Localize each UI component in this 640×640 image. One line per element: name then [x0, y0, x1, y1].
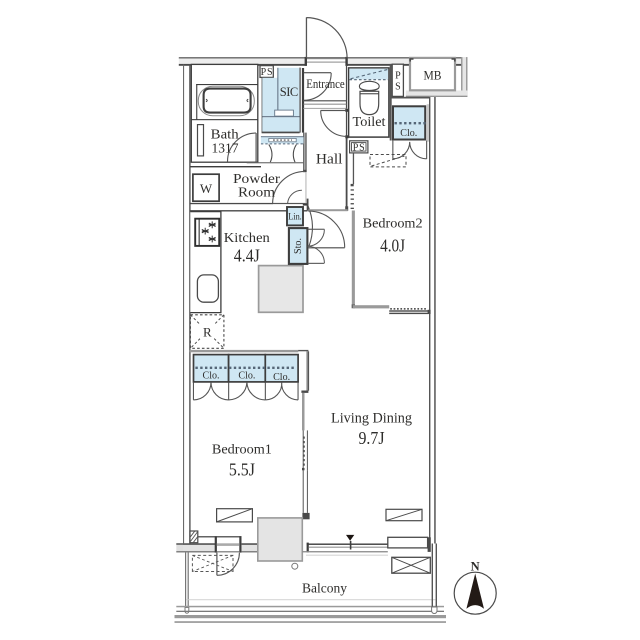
svg-text:4.4J: 4.4J: [234, 245, 260, 265]
svg-text:PS: PS: [353, 143, 365, 154]
svg-text:PS: PS: [261, 67, 273, 78]
svg-text:Toilet: Toilet: [353, 115, 386, 130]
svg-text:Kitchen: Kitchen: [224, 230, 270, 245]
svg-text:Bath: Bath: [211, 127, 239, 142]
svg-text:5.5J: 5.5J: [229, 459, 255, 479]
svg-text:Clo.: Clo.: [238, 370, 255, 381]
svg-text:Lin.: Lin.: [288, 213, 302, 223]
svg-text:9.7J: 9.7J: [359, 428, 385, 448]
svg-text:Room: Room: [238, 185, 275, 200]
svg-text:Bedroom1: Bedroom1: [212, 442, 272, 457]
svg-text:1317: 1317: [212, 142, 239, 157]
svg-text:Sto.: Sto.: [293, 238, 304, 254]
svg-text:Bedroom2: Bedroom2: [363, 216, 423, 231]
svg-text:Balcony: Balcony: [302, 581, 347, 596]
svg-text:Clo.: Clo.: [203, 370, 220, 381]
svg-text:Clo.: Clo.: [273, 372, 290, 383]
svg-text:MB: MB: [424, 69, 442, 83]
svg-text:Entrance: Entrance: [306, 76, 345, 91]
svg-text:N: N: [471, 560, 480, 574]
svg-text:P: P: [395, 71, 401, 82]
svg-text:W: W: [200, 181, 213, 196]
svg-text:R: R: [203, 325, 212, 340]
svg-text:SIC: SIC: [280, 85, 299, 99]
svg-text:Hall: Hall: [316, 151, 343, 167]
svg-text:Living Dining: Living Dining: [331, 409, 412, 426]
svg-text:S: S: [395, 82, 401, 93]
svg-text:Clo.: Clo.: [400, 128, 417, 139]
svg-text:4.0J: 4.0J: [380, 235, 405, 255]
